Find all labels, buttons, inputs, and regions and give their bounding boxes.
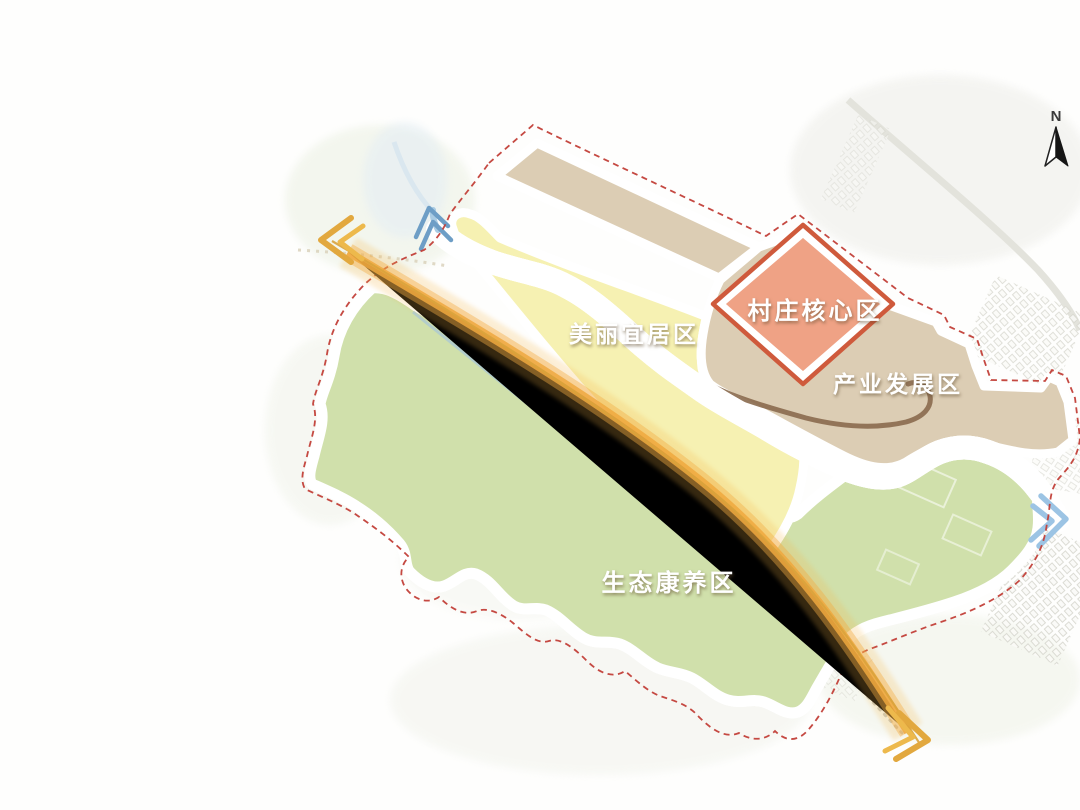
label-livable-zone: 美丽宜居区 [569,321,699,347]
label-eco-wellness-zone: 生态康养区 [602,569,737,597]
planning-slide: 一轴 一带 四片区 一轴: 城镇发展轴 一带: 滨水景观形象带 四片区: 美丽宜… [0,0,1080,810]
label-village-core-zone: 村庄核心区 [748,297,883,325]
label-industry-zone: 产业发展区 [833,371,963,397]
north-label: N [1051,108,1062,125]
master-plan-map: 美丽宜居区 村庄核心区 产业发展区 生态康养区 N [0,0,1080,810]
